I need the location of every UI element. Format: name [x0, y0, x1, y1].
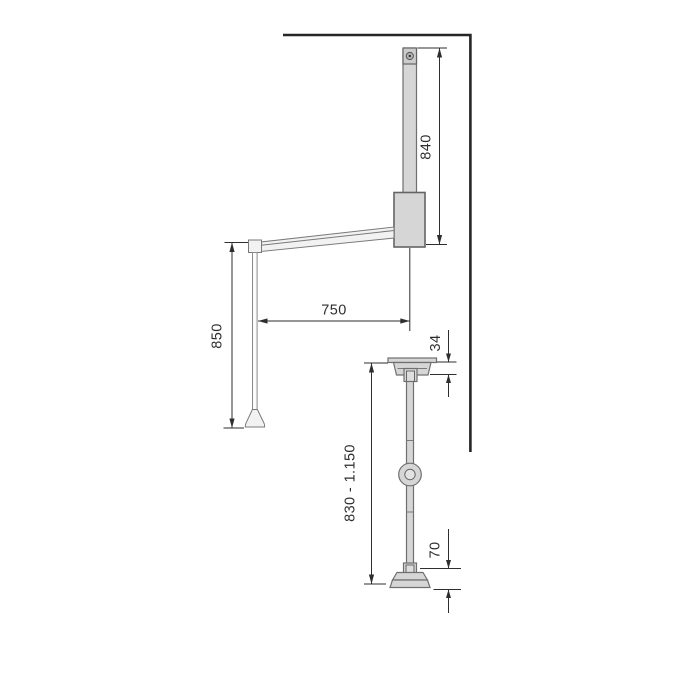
arrowhead	[400, 318, 410, 323]
arrowhead	[446, 590, 451, 599]
arrowhead	[446, 560, 451, 569]
arrowhead	[446, 354, 451, 363]
swing-arm	[261, 227, 394, 252]
wardrobe-lift-dimension-drawing: 840 850 750	[0, 0, 700, 700]
floor-base-band	[390, 580, 430, 588]
arrowhead	[229, 243, 234, 253]
dimension-750: 750	[258, 248, 410, 331]
arrowhead	[437, 48, 442, 58]
adjuster-ring-hub	[405, 469, 415, 479]
dimension-adjustable-height: 830 - 1.150	[343, 363, 389, 584]
technical-drawing-canvas: 840 850 750	[0, 0, 700, 700]
dimension-850: 850	[210, 243, 249, 429]
arrowhead	[258, 318, 268, 323]
support-tube	[403, 48, 417, 196]
dimension-70: 70	[420, 529, 461, 613]
dimension-840-label: 840	[419, 134, 435, 159]
dimension-70-label: 70	[428, 542, 444, 559]
pull-rod	[253, 253, 258, 410]
dimension-750-label: 750	[321, 303, 346, 319]
dimension-adjustable-height-label: 830 - 1.150	[343, 444, 359, 522]
lift-mechanism-box	[394, 193, 425, 248]
side-view: 34 830 - 1.150 70	[343, 330, 462, 613]
dimension-850-label: 850	[210, 323, 226, 348]
mount-screw-center	[409, 55, 411, 57]
arrowhead	[446, 375, 451, 384]
dimension-34-label: 34	[428, 335, 444, 352]
arrowhead	[369, 575, 374, 585]
rod-clamp-top-inner	[407, 371, 415, 382]
floor-base-skirt	[393, 573, 428, 581]
pull-handle-foot	[245, 410, 264, 428]
arrowhead	[437, 235, 442, 245]
arm-end-cap	[249, 240, 262, 253]
arrowhead	[229, 419, 234, 429]
ceiling-bracket-flange	[388, 358, 437, 363]
arrowhead	[369, 363, 374, 373]
dimension-34: 34	[428, 330, 457, 397]
